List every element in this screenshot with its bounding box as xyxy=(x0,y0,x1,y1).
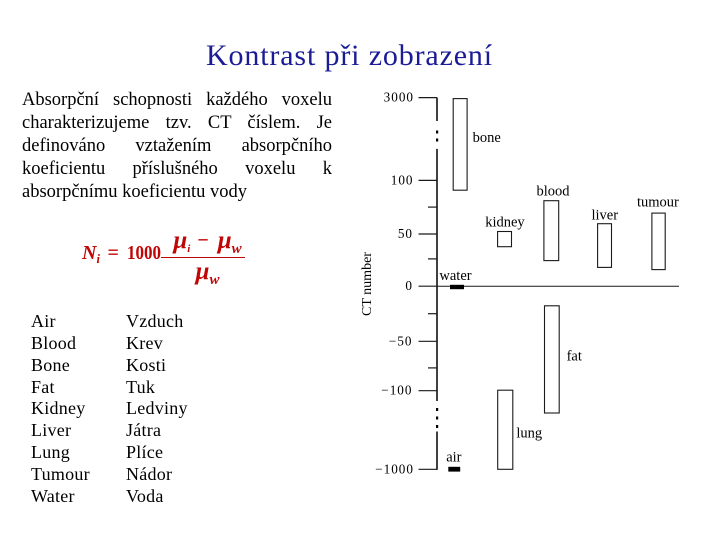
svg-text:fat: fat xyxy=(567,348,582,364)
svg-text:liver: liver xyxy=(592,208,619,224)
svg-text:−100: −100 xyxy=(381,383,412,398)
svg-text:100: 100 xyxy=(391,172,414,187)
svg-text:bone: bone xyxy=(473,130,501,146)
svg-text:blood: blood xyxy=(537,184,571,200)
svg-text:tumour: tumour xyxy=(637,195,679,211)
svg-text:−1000: −1000 xyxy=(375,461,414,476)
svg-text:50: 50 xyxy=(398,226,413,241)
svg-text:3000: 3000 xyxy=(384,90,414,105)
svg-text:water: water xyxy=(439,268,471,284)
svg-text:−50: −50 xyxy=(389,333,413,348)
svg-text:kidney: kidney xyxy=(485,214,525,230)
svg-text:0: 0 xyxy=(405,278,413,293)
svg-text:CT number: CT number xyxy=(360,252,375,316)
svg-text:lung: lung xyxy=(516,426,542,442)
svg-text:air: air xyxy=(446,449,461,465)
